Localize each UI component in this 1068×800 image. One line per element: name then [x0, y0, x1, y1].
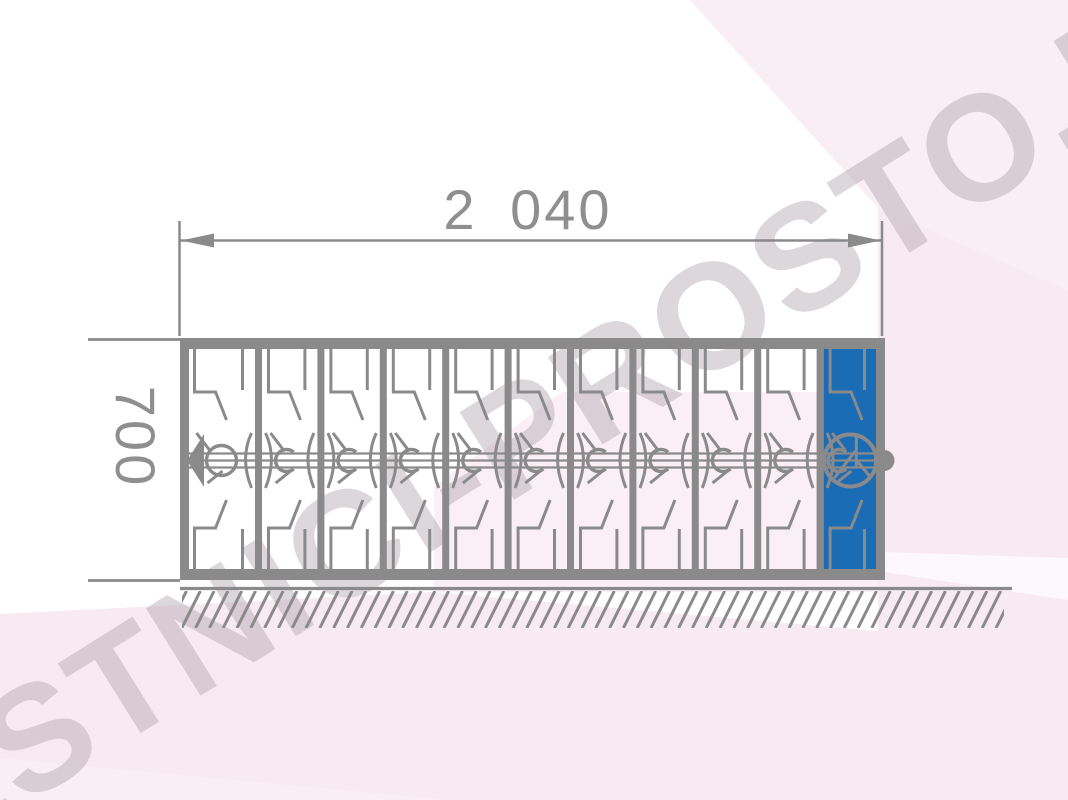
- baluster-post: [442, 338, 449, 580]
- upper-flourish: [395, 433, 408, 450]
- ground-hatch: [168, 589, 1015, 629]
- panel-top-ornament: [643, 349, 675, 420]
- width-dimension-label: 2 040: [443, 178, 612, 241]
- panel-top-ornament: [456, 349, 488, 420]
- bottom-rail: [180, 569, 885, 580]
- baluster-post: [255, 338, 262, 580]
- panel-top-ornament: [331, 349, 363, 420]
- end-dot: [874, 450, 895, 471]
- baluster-post: [505, 338, 512, 580]
- panel-top-ornament: [768, 349, 800, 420]
- upper-flourish: [770, 433, 783, 450]
- upper-flourish: [520, 433, 533, 450]
- railing-elevation-drawing: 2 040 700: [0, 0, 1068, 800]
- panel-top-ornament: [269, 349, 301, 420]
- dimension-arrow-left: [181, 234, 214, 248]
- panel-bottom-ornament: [195, 500, 227, 569]
- upper-flourish: [458, 433, 471, 450]
- left-edge-post: [180, 338, 189, 580]
- panel-top-ornament: [393, 349, 425, 420]
- top-rail: [180, 338, 885, 349]
- start-arrow: [187, 434, 204, 487]
- panel-top-ornament: [581, 349, 613, 420]
- panel-bottom-ornament: [581, 500, 613, 569]
- baluster-post: [754, 338, 761, 580]
- panel-bottom-ornament: [269, 500, 301, 569]
- upper-flourish: [645, 433, 658, 450]
- panel-top-ornament: [195, 349, 227, 420]
- panel-bottom-ornament: [393, 500, 425, 569]
- railing-ornaments: [189, 349, 876, 569]
- upper-flourish: [583, 433, 596, 450]
- upper-flourish: [333, 433, 346, 450]
- panel-bottom-ornament: [768, 500, 800, 569]
- height-dimension-label: 700: [104, 386, 167, 488]
- technical-drawing-page: LESTNICI-PROSTO.RU 2 040 700: [0, 0, 1068, 800]
- baluster-post: [692, 338, 699, 580]
- upper-flourish: [271, 433, 284, 450]
- dimension-arrow-right: [848, 234, 881, 248]
- panel-bottom-ornament: [518, 500, 550, 569]
- baluster-post: [629, 338, 636, 580]
- panel-top-ornament: [518, 349, 550, 420]
- panel-bottom-ornament: [643, 500, 675, 569]
- upper-flourish: [707, 433, 720, 450]
- baluster-post: [317, 338, 324, 580]
- panel-bottom-ornament: [456, 500, 488, 569]
- railing-frame: [180, 338, 885, 580]
- baluster-post: [380, 338, 387, 580]
- baluster-post: [567, 338, 574, 580]
- panel-bottom-ornament: [705, 500, 737, 569]
- panel-bottom-ornament: [331, 500, 363, 569]
- panel-top-ornament: [705, 349, 737, 420]
- hatch-lines: [168, 591, 1015, 628]
